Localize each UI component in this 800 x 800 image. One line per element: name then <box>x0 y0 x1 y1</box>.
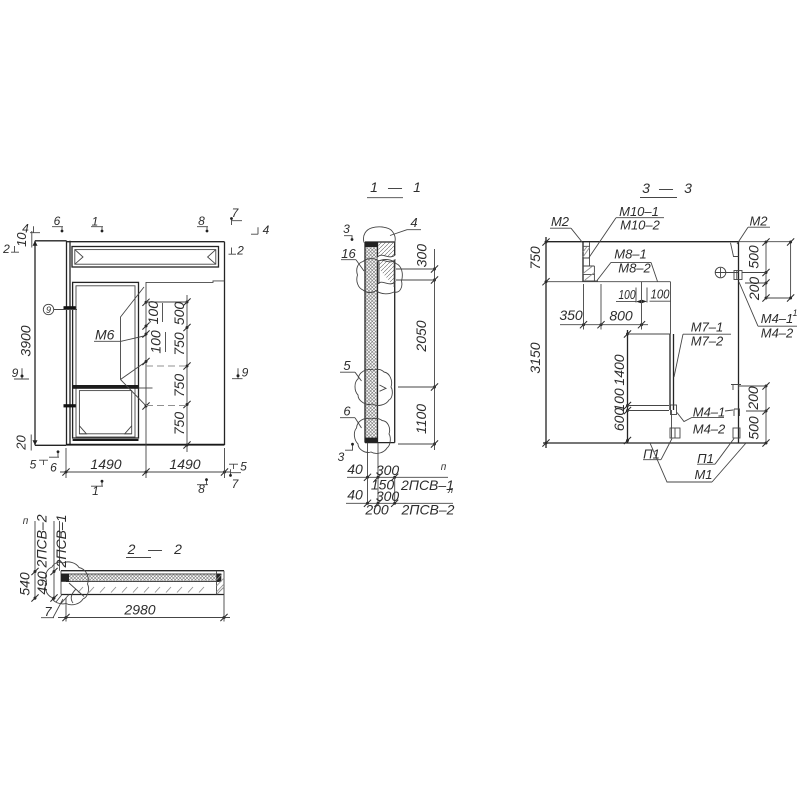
svg-text:2ПСВ–2: 2ПСВ–2 <box>34 514 50 568</box>
svg-text:4: 4 <box>22 222 29 236</box>
svg-text:1: 1 <box>413 179 421 195</box>
svg-text:1: 1 <box>370 179 378 195</box>
svg-text:5: 5 <box>240 460 247 474</box>
svg-text:200: 200 <box>746 277 762 302</box>
svg-text:1400: 1400 <box>611 354 627 385</box>
svg-text:750: 750 <box>527 246 543 270</box>
svg-text:2: 2 <box>173 541 182 557</box>
svg-text:2980: 2980 <box>123 602 155 618</box>
svg-text:М10–2: М10–2 <box>620 218 661 233</box>
svg-text:4: 4 <box>410 215 417 230</box>
svg-text:2050: 2050 <box>413 320 429 352</box>
svg-text:40: 40 <box>347 461 363 477</box>
svg-text:8: 8 <box>198 482 205 496</box>
svg-text:16: 16 <box>341 246 356 261</box>
svg-text:5: 5 <box>30 458 37 472</box>
svg-text:М4–2: М4–2 <box>693 422 726 437</box>
svg-text:40: 40 <box>347 487 363 503</box>
svg-text:—: — <box>147 541 163 557</box>
svg-text:л: л <box>447 485 453 495</box>
svg-text:2ПСВ–2: 2ПСВ–2 <box>401 502 455 518</box>
svg-text:2: 2 <box>2 242 10 256</box>
svg-text:20: 20 <box>14 435 29 451</box>
svg-text:540: 540 <box>17 572 33 596</box>
svg-text:9: 9 <box>242 366 249 380</box>
svg-text:4: 4 <box>263 223 270 237</box>
svg-text:500: 500 <box>746 245 762 269</box>
svg-text:8: 8 <box>198 214 205 228</box>
svg-text:7: 7 <box>44 604 52 619</box>
svg-text:—: — <box>387 179 403 195</box>
svg-text:М1: М1 <box>694 467 712 482</box>
svg-text:1490: 1490 <box>169 456 200 472</box>
svg-text:М2: М2 <box>749 214 768 229</box>
svg-text:2ПСВ–1: 2ПСВ–1 <box>400 477 454 493</box>
svg-text:600: 600 <box>611 408 627 432</box>
svg-text:М7–1: М7–1 <box>691 320 724 335</box>
svg-text:М4–2: М4–2 <box>761 326 794 341</box>
svg-text:350: 350 <box>559 307 583 323</box>
svg-text:М8–1: М8–1 <box>614 247 647 262</box>
svg-text:1100: 1100 <box>413 404 429 434</box>
svg-text:2ПСВ–1: 2ПСВ–1 <box>53 515 69 569</box>
svg-text:300: 300 <box>414 244 430 268</box>
svg-text:9: 9 <box>12 366 19 380</box>
svg-text:750: 750 <box>171 412 187 436</box>
svg-text:6: 6 <box>343 404 351 419</box>
svg-text:100: 100 <box>145 301 161 325</box>
svg-text:9: 9 <box>46 305 51 315</box>
svg-text:п: п <box>23 516 29 527</box>
svg-text:1: 1 <box>792 308 797 318</box>
svg-text:100: 100 <box>148 330 164 354</box>
svg-text:М7–2: М7–2 <box>691 334 724 349</box>
svg-text:М2: М2 <box>551 214 570 229</box>
svg-text:490: 490 <box>34 571 50 595</box>
svg-text:2: 2 <box>127 541 136 557</box>
svg-text:3: 3 <box>642 180 650 196</box>
svg-text:6: 6 <box>54 214 61 228</box>
svg-text:200: 200 <box>745 386 761 411</box>
svg-text:500: 500 <box>746 416 762 440</box>
svg-text:М4–1: М4–1 <box>761 311 794 326</box>
svg-text:3: 3 <box>684 180 692 196</box>
svg-text:500: 500 <box>171 302 187 326</box>
svg-text:1490: 1490 <box>90 456 121 472</box>
svg-text:М6: М6 <box>95 327 115 343</box>
svg-text:800: 800 <box>609 308 633 324</box>
svg-text:100: 100 <box>619 287 637 302</box>
svg-text:100: 100 <box>651 287 671 302</box>
svg-text:3: 3 <box>338 450 345 464</box>
svg-text:5: 5 <box>343 358 351 373</box>
svg-text:2: 2 <box>236 244 244 258</box>
svg-text:3: 3 <box>343 222 350 236</box>
svg-text:200: 200 <box>364 502 389 518</box>
svg-text:750: 750 <box>171 374 187 398</box>
svg-text:—: — <box>658 180 674 196</box>
svg-text:3900: 3900 <box>18 325 34 356</box>
svg-text:6: 6 <box>50 461 57 475</box>
svg-text:3150: 3150 <box>527 342 543 373</box>
svg-text:п: п <box>441 462 447 473</box>
svg-text:750: 750 <box>171 332 187 356</box>
